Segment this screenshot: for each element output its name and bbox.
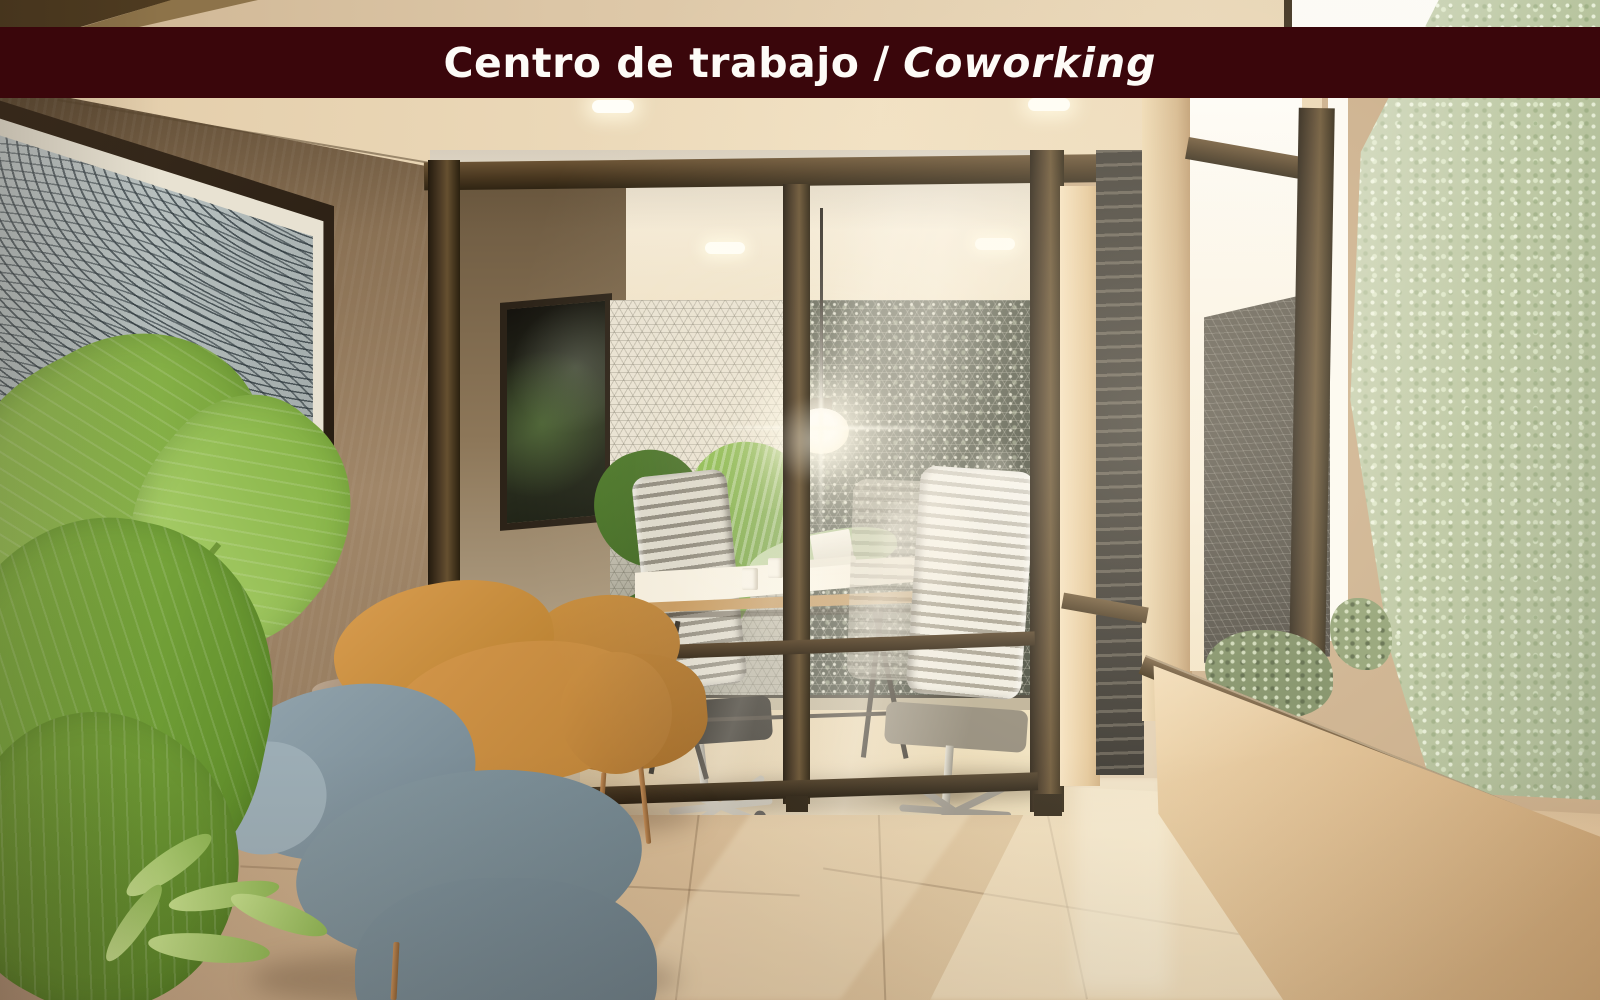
mustard-armchair-armrest bbox=[560, 652, 672, 774]
louvered-window bbox=[1096, 150, 1144, 775]
banner-subtitle: Coworking bbox=[903, 39, 1156, 87]
coworking-render: Centro de trabajo / Coworking bbox=[0, 0, 1600, 1000]
partition-mullion-right bbox=[1030, 150, 1064, 812]
banner-title: Centro de trabajo bbox=[443, 39, 859, 87]
partition-stub bbox=[1034, 794, 1062, 816]
window-frame-top-line bbox=[1284, 0, 1292, 30]
window-post bbox=[1142, 96, 1192, 721]
title-banner: Centro de trabajo / Coworking bbox=[0, 27, 1600, 98]
recessed-light bbox=[592, 100, 634, 113]
pilaster bbox=[1060, 186, 1100, 786]
partition-mullion-center bbox=[783, 184, 810, 804]
partition-stub bbox=[786, 796, 808, 812]
green-wall bbox=[1340, 0, 1600, 800]
bush bbox=[1330, 598, 1392, 670]
lamp-glow bbox=[768, 398, 863, 483]
recessed-light bbox=[1028, 98, 1070, 111]
banner-separator: / bbox=[873, 38, 889, 88]
